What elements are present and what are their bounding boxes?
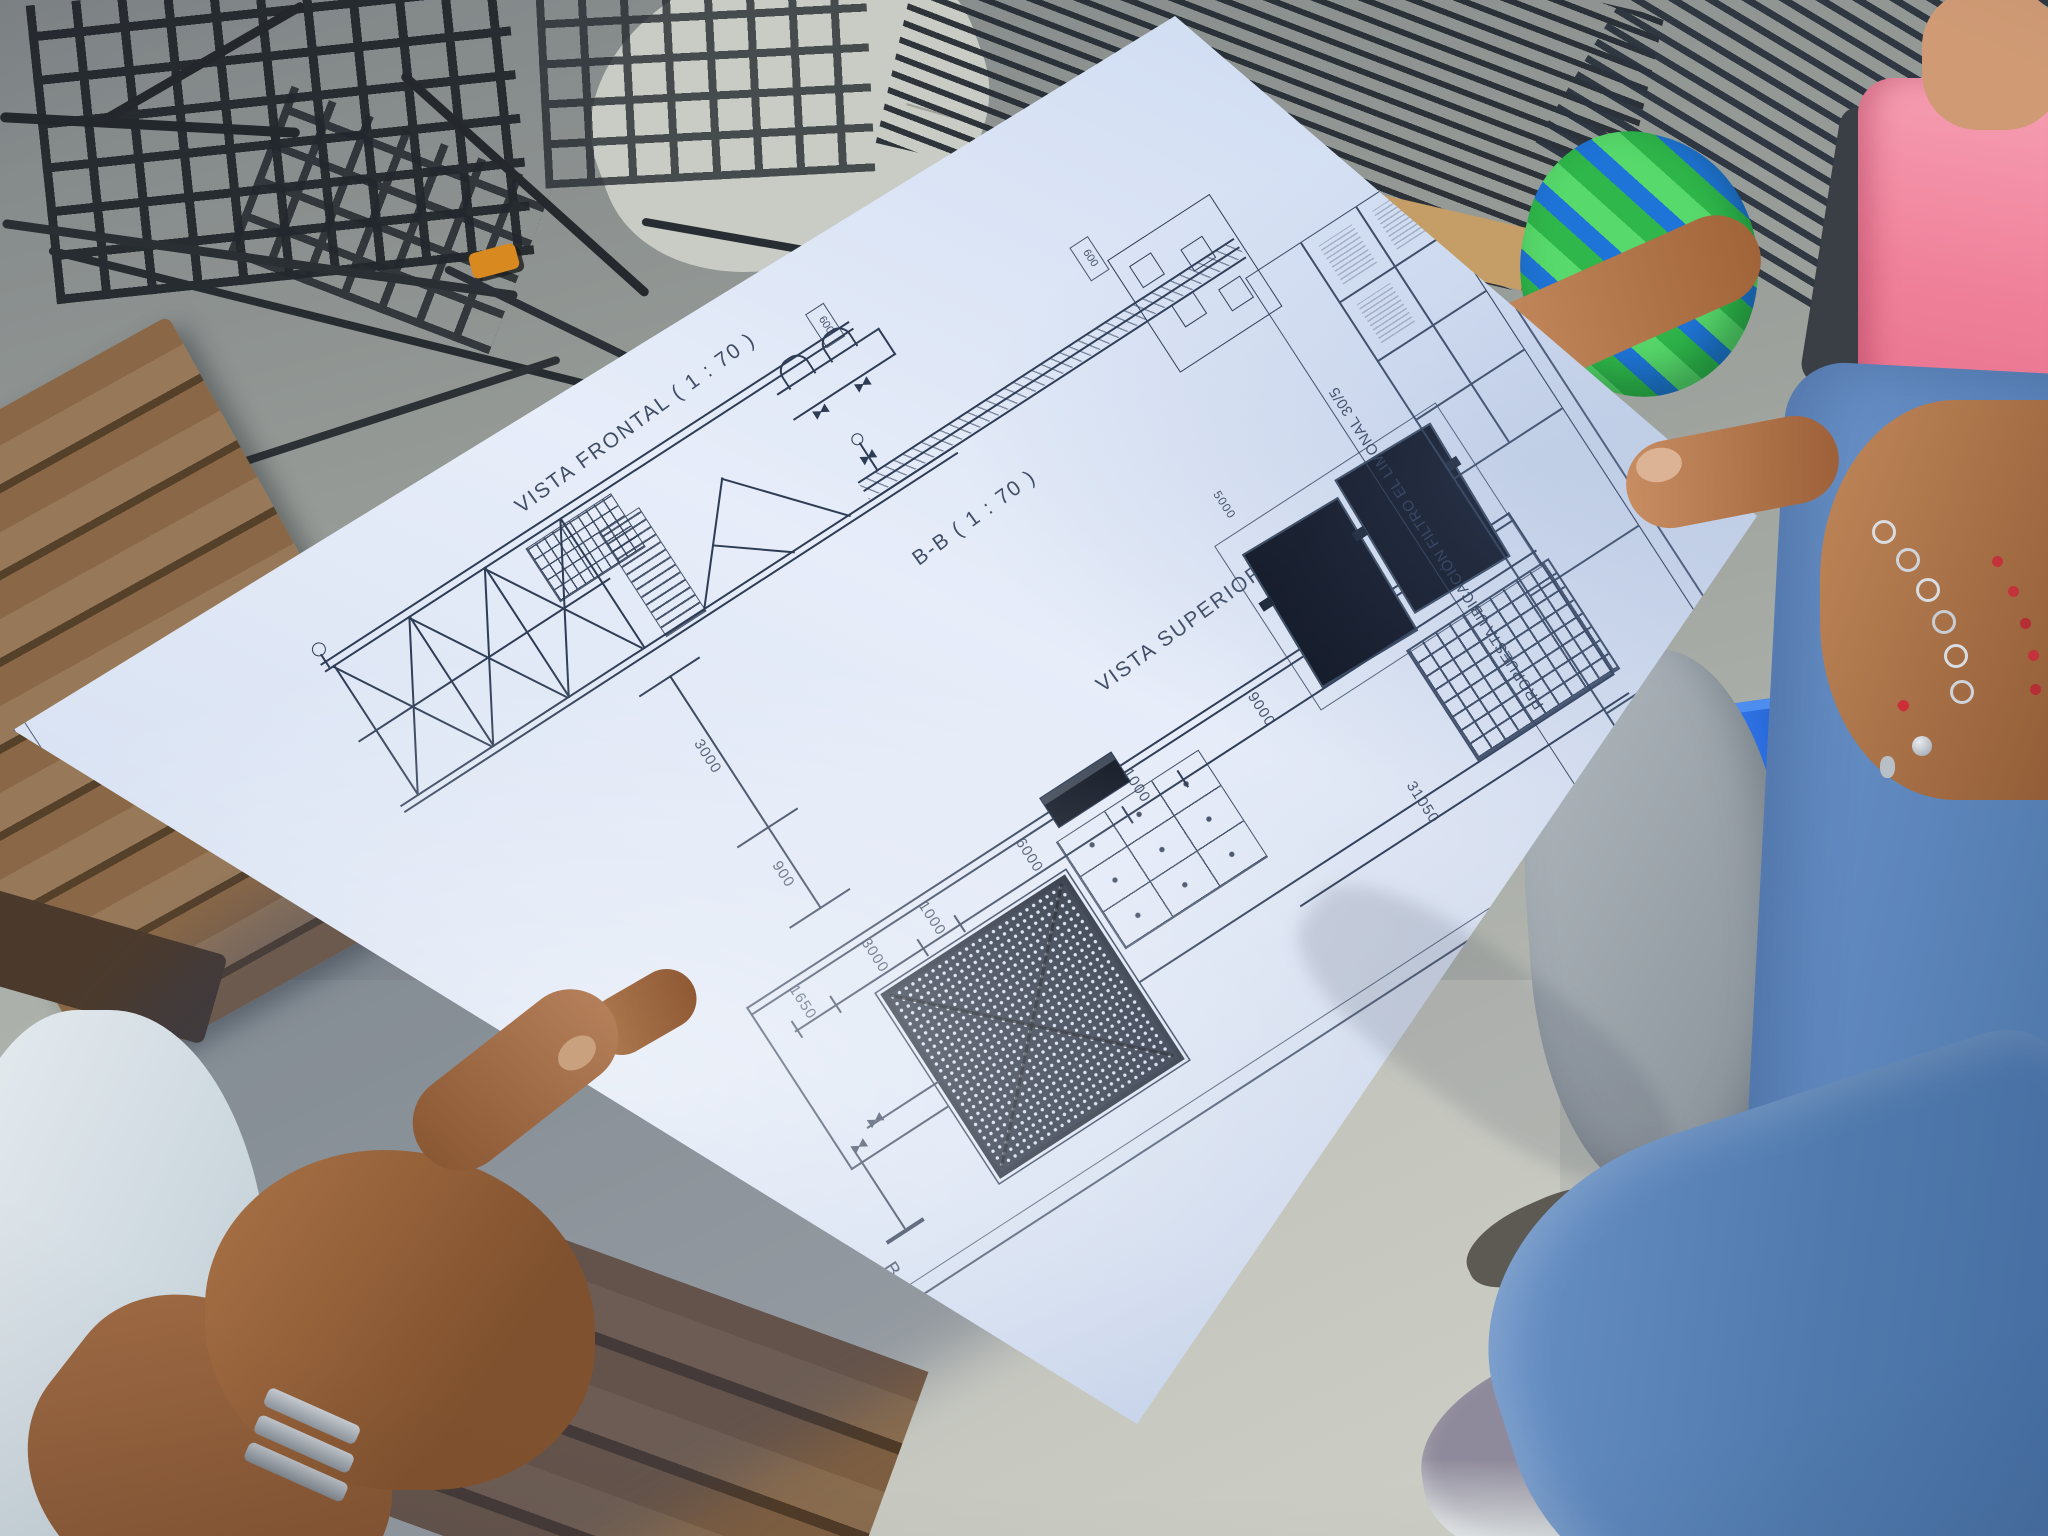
front-view-label: VISTA FRONTAL ( 1 : 70 ) [511, 328, 761, 519]
title-block-line [1529, 525, 1639, 597]
red-bead-bracelet [2020, 618, 2031, 629]
pipe-rail [777, 327, 880, 395]
drawing-line [858, 238, 1235, 483]
extension-tick [916, 939, 928, 957]
bell-charm [1912, 736, 1932, 756]
top-view-label: VISTA SUPERIOR ( 1 : 70 ) [1092, 497, 1355, 697]
dimension-line [669, 675, 822, 909]
tank-grid [1056, 750, 1268, 950]
drawing-line [358, 577, 610, 742]
panel-diagonal [1000, 883, 1063, 1167]
drawing-line [320, 321, 849, 665]
red-bead-bracelet [1992, 556, 2003, 567]
perforated-panel [880, 874, 1184, 1178]
wall-opening [1218, 276, 1254, 312]
truss-brace [408, 616, 568, 697]
truss-brace [332, 665, 492, 746]
title-line-1: PROPUESTA UBICACIÓN FILTRO EL [1385, 476, 1547, 713]
valve-symbol [867, 1112, 885, 1129]
background-arm-skin [1922, 0, 2048, 130]
dimension-600: 600 [805, 303, 845, 349]
dimension-6000: 6000 [1012, 835, 1047, 876]
drawing-line [325, 328, 854, 672]
filter-panel-dark [1242, 497, 1418, 688]
extension-line [789, 888, 850, 929]
truss-brace [483, 567, 643, 648]
u-pipe [816, 322, 858, 363]
rail-hatch [858, 239, 1245, 500]
dark-small-tank [1039, 751, 1131, 828]
red-bead-bracelet [2030, 684, 2041, 695]
drawing-line [870, 256, 1247, 501]
truss-brace [559, 519, 569, 697]
silver-chain-bracelet [1950, 680, 1974, 704]
silver-chain-bracelet [1916, 578, 1940, 602]
rebar-cage [535, 0, 876, 188]
panel-diagonal [890, 994, 1174, 1057]
gable-line [712, 544, 795, 553]
extension-tick [1176, 770, 1188, 788]
dimension-1000: 1000 [1119, 765, 1154, 806]
truss-post [559, 517, 645, 649]
truss-post [333, 665, 419, 797]
fine-print-marks [1318, 224, 1377, 284]
section-label: B-B ( 1 : 70 ) [908, 465, 1041, 571]
dimension-900: 900 [769, 858, 799, 891]
truss-brace [484, 568, 494, 746]
valve-symbol [854, 376, 872, 393]
title-block-line [1376, 290, 1486, 362]
filter-panel-frame [1214, 402, 1542, 710]
dimension-31050: 31050 [1403, 778, 1443, 826]
filter-panel-dark [1334, 422, 1510, 613]
truss-post [408, 616, 494, 748]
valve-symbol [812, 403, 830, 420]
ladder-hatch [599, 507, 707, 637]
panel-clamp [1351, 526, 1368, 542]
red-bead-bracelet [2028, 650, 2039, 661]
silver-chain-bracelet [1896, 548, 1920, 572]
pipe-stub [859, 442, 879, 471]
truss-brace [408, 617, 418, 795]
pipe-line [852, 1148, 906, 1230]
extension-line [737, 807, 798, 848]
wall-opening [1180, 236, 1216, 272]
section-cut-tee [886, 1217, 925, 1244]
pipe-flange [849, 431, 866, 448]
truss-post [484, 566, 570, 698]
dimension-1650: 1650 [786, 982, 821, 1023]
title-line-2: LIMONAL 30/5 [1326, 384, 1397, 481]
extension-tick [791, 1021, 803, 1039]
silver-chain-bracelet [1944, 644, 1968, 668]
wall-opening [1171, 292, 1207, 328]
red-bead-bracelet [2008, 586, 2019, 597]
fine-print-marks [1357, 283, 1416, 343]
lug-stem [320, 654, 330, 668]
pipe-line [867, 1080, 940, 1129]
construction-site-photo: VISTA FRONTAL ( 1 : 70 ) [0, 0, 2048, 1536]
dimension-1000: 1000 [915, 898, 950, 939]
panel-clamp [1258, 596, 1275, 612]
panel-clamp [1444, 456, 1461, 472]
wall-with-openings [1107, 194, 1282, 373]
title-block-line [1338, 231, 1448, 303]
dimension-9000: 9000 [1244, 689, 1279, 730]
extension-tick [953, 915, 965, 933]
bear-charm [1880, 756, 1895, 778]
dimension-5000: 5000 [1210, 488, 1238, 521]
title-block-line [1415, 349, 1525, 421]
gable-line [703, 477, 723, 611]
mesh-tank [525, 493, 645, 602]
grating-panel [1406, 558, 1620, 761]
drawing-line [746, 1007, 853, 1171]
pipe-rail [793, 353, 896, 421]
dimension-3000: 3000 [858, 935, 893, 976]
extension-line [639, 656, 700, 697]
drawing-line [863, 246, 1240, 491]
lifting-lug [309, 640, 328, 659]
silver-chain-bracelet [1872, 520, 1896, 544]
drawing-line [1507, 512, 1614, 676]
dimension-600: 600 [1069, 236, 1109, 282]
drawing-line [404, 452, 958, 813]
extension-tick [1121, 806, 1133, 824]
drawing-line [400, 446, 954, 807]
valve-symbol [850, 1138, 868, 1155]
extension-tick [829, 996, 841, 1014]
wall-opening [1129, 252, 1165, 288]
dimension-3000: 3000 [690, 736, 725, 777]
silver-chain-bracelet [1932, 610, 1956, 634]
title-block-line [1453, 408, 1563, 480]
u-pipe [774, 349, 816, 390]
pipe-rail-end [877, 328, 896, 356]
valve-symbol [859, 449, 877, 466]
gable-line [721, 478, 851, 517]
